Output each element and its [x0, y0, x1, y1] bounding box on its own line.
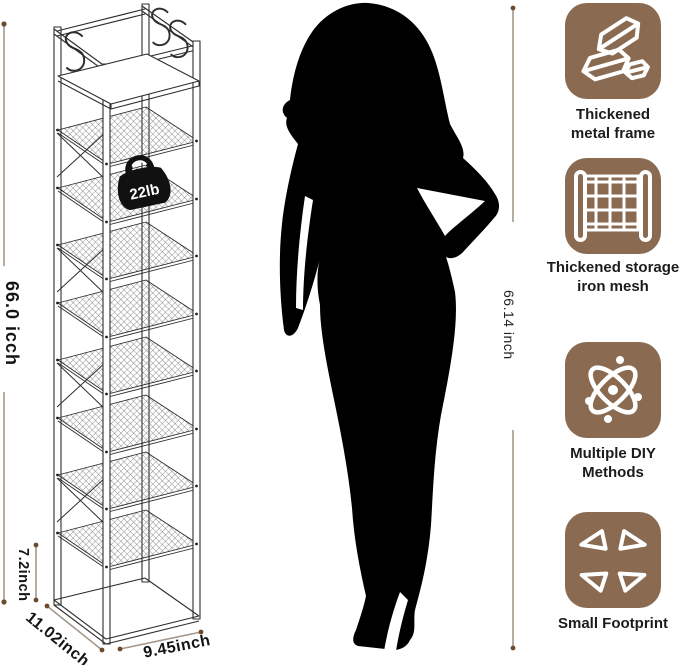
woman-silhouette	[280, 3, 499, 651]
rack-bottom-frame	[54, 578, 199, 644]
rack-top-board	[58, 54, 199, 109]
feature-caption-line: Thickened	[543, 105, 679, 124]
feature-caption-line: metal frame	[543, 124, 679, 143]
feature-caption: Thickened storage iron mesh	[543, 258, 679, 296]
feature-caption-line: iron mesh	[543, 277, 679, 296]
rack-front-left-leg	[103, 64, 110, 644]
s-hook-icon	[170, 21, 187, 58]
feature-caption-line: Methods	[543, 463, 679, 482]
iron-mesh-icon	[565, 158, 661, 254]
rack-front-right-leg	[193, 41, 200, 619]
shoe-rack-illustration	[54, 4, 200, 644]
feature-caption: Thickened metal frame	[543, 105, 679, 143]
gold-bars-icon	[565, 3, 661, 99]
s-hook-icon	[152, 9, 169, 46]
person-height-label: 66.14 inch	[501, 290, 517, 360]
feature-caption-line: Small Footprint	[543, 614, 679, 633]
expand-arrows-icon	[565, 512, 661, 608]
feature-caption: Multiple DIY Methods	[543, 444, 679, 482]
feature-caption-line: Thickened storage	[543, 258, 679, 277]
product-infographic: 22lb 66.0 icch 7.2inch 11.02	[0, 0, 679, 665]
feature-caption: Small Footprint	[543, 614, 679, 633]
feature-caption-line: Multiple DIY	[543, 444, 679, 463]
atom-icon	[565, 342, 661, 438]
rack-back-left-leg	[54, 27, 61, 605]
s-hook-icon	[66, 32, 84, 70]
rack-height-label: 66.0 icch	[1, 281, 22, 366]
shelf-gap-label: 7.2inch	[15, 548, 31, 601]
